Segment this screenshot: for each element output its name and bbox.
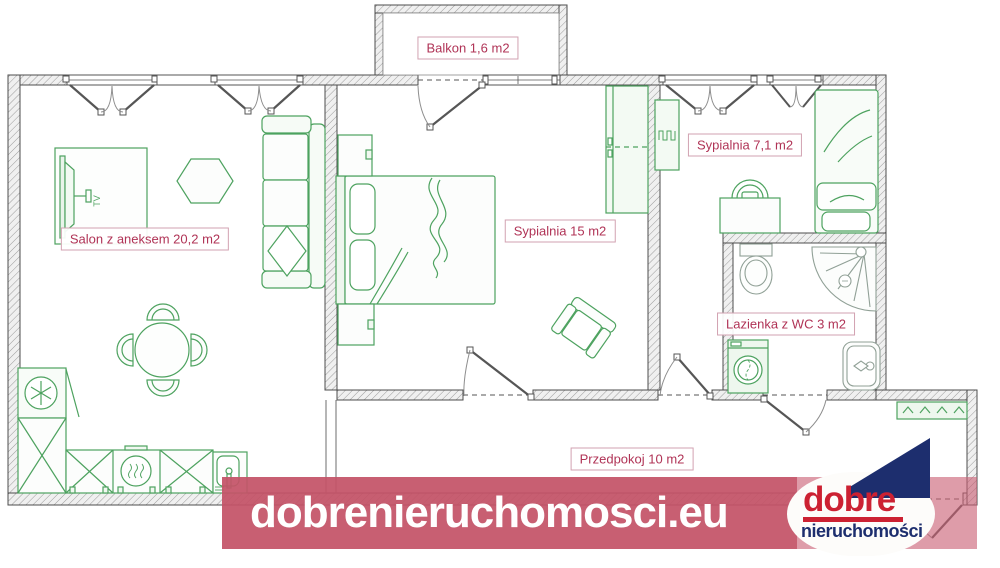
toilet-icon bbox=[740, 244, 772, 294]
balcony-wall-left bbox=[375, 5, 383, 77]
balcony-window bbox=[483, 75, 560, 85]
wall-bedroom-bathroom bbox=[723, 233, 886, 243]
balcony-wall-right bbox=[559, 5, 567, 77]
floorplan-page: TV bbox=[0, 0, 1000, 568]
wardrobe-icon bbox=[606, 86, 648, 213]
room-label-sypialnia-71: Sypialnia 7,1 m2 bbox=[688, 134, 802, 157]
room-label-przedpokoj: Przedpokoj 10 m2 bbox=[571, 448, 694, 471]
room-label-lazienka: Lazienka z WC 3 m2 bbox=[717, 313, 855, 336]
salon-window-1 bbox=[63, 75, 158, 115]
logo-text-nieruchomosci: nieruchomości bbox=[801, 521, 923, 541]
desk-chair-icon bbox=[720, 180, 780, 233]
room-label-balkon: Balkon 1,6 m2 bbox=[417, 37, 518, 60]
shoe-cabinet-icon bbox=[897, 402, 967, 419]
salon-window-2 bbox=[211, 75, 303, 114]
sofa-icon bbox=[262, 116, 325, 288]
bathroom-sink-icon bbox=[843, 342, 880, 390]
room-label-sypialnia-15: Sypialnia 15 m2 bbox=[505, 220, 616, 243]
double-bed-icon bbox=[336, 176, 495, 304]
radiator-icon bbox=[655, 100, 679, 170]
svg-text:TV: TV bbox=[92, 195, 102, 207]
balcony-wall-top bbox=[375, 5, 567, 13]
bedroom2-door bbox=[658, 354, 713, 399]
room-label-salon: Salon z aneksem 20,2 m2 bbox=[61, 228, 229, 251]
washing-machine-icon bbox=[728, 340, 768, 393]
dining-table-icon bbox=[117, 304, 207, 396]
single-bed-icon bbox=[815, 90, 878, 233]
shower-icon bbox=[812, 247, 876, 311]
fridge-icon bbox=[18, 368, 79, 418]
bedroom1-door bbox=[463, 347, 534, 400]
bathroom-door bbox=[761, 395, 827, 435]
balcony-door bbox=[418, 80, 485, 130]
watermark-url: dobrenieruchomosci.eu bbox=[250, 477, 728, 549]
armchair-icon bbox=[551, 295, 618, 359]
kitchen-cabinet-icon bbox=[18, 418, 213, 493]
logo-text-dobre: dobre bbox=[803, 482, 895, 518]
windows-layer bbox=[63, 75, 823, 115]
wall-salon-bedroom bbox=[325, 85, 337, 390]
hex-table-icon bbox=[177, 159, 233, 203]
